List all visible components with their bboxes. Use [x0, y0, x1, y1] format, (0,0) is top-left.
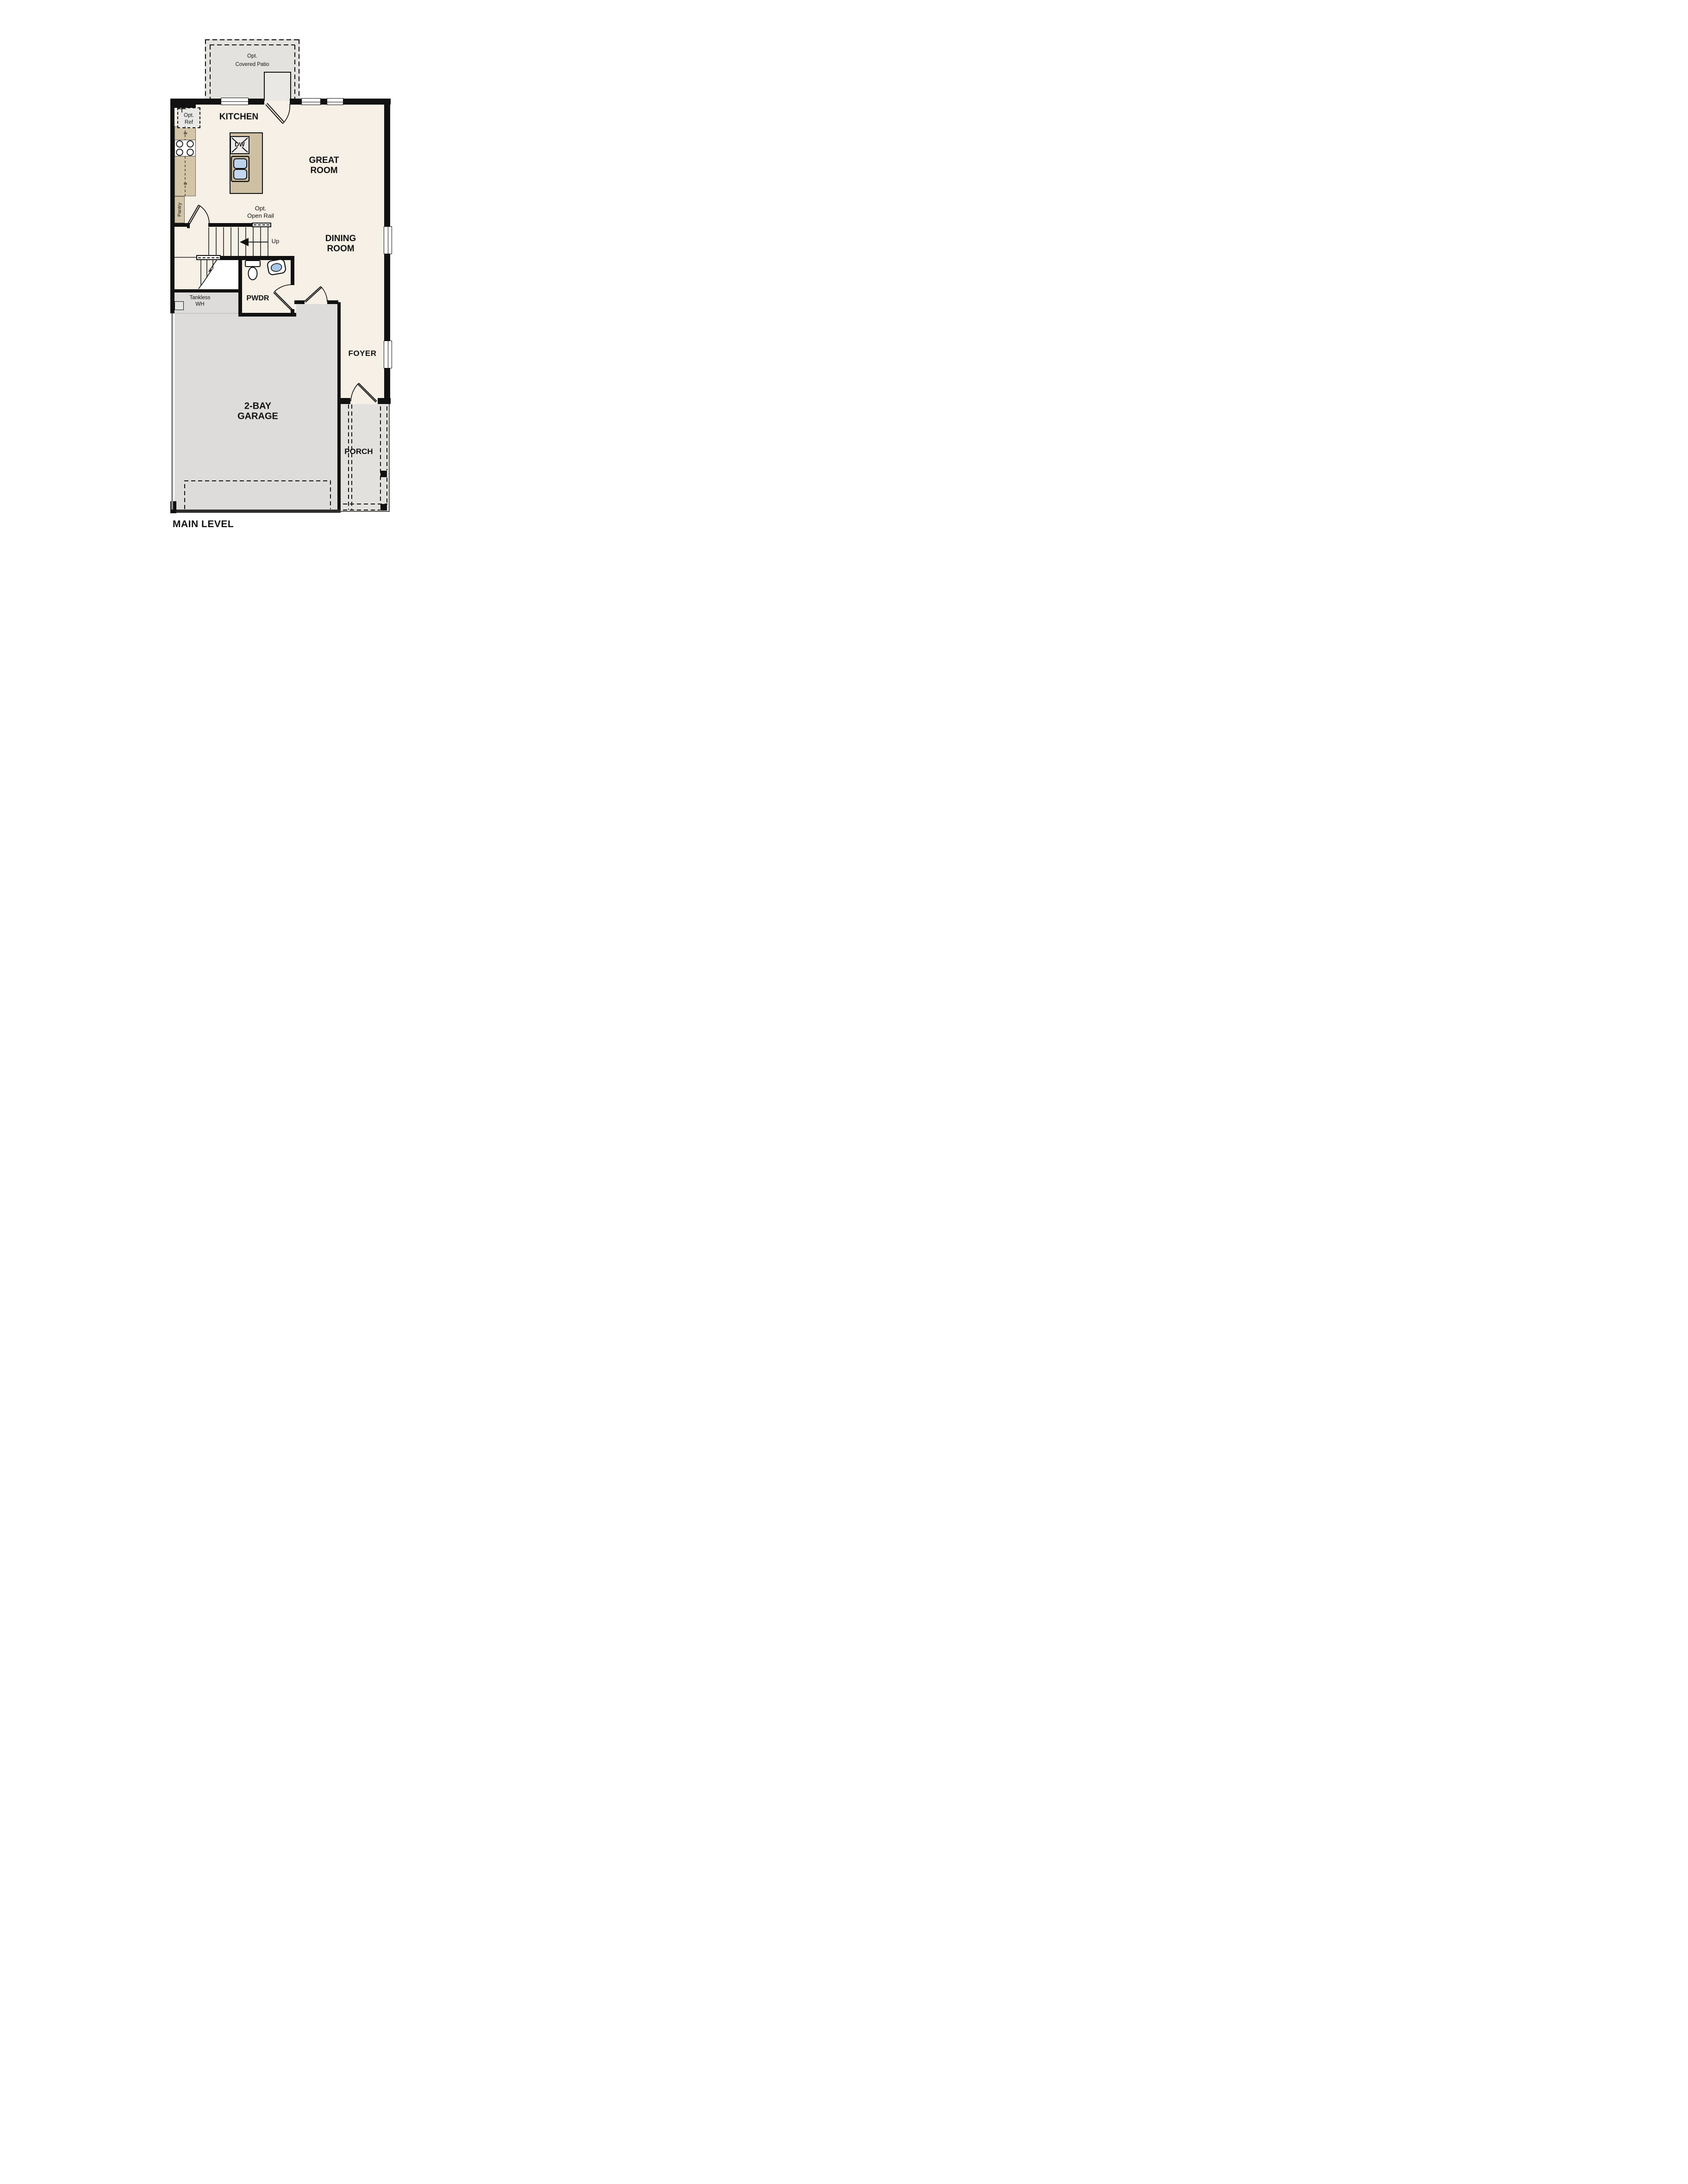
up-label: Up [272, 238, 280, 245]
kitchen-label: KITCHEN [219, 112, 258, 122]
ref-plus-marker [178, 105, 186, 112]
dining-room-label-line2: ROOM [327, 244, 354, 254]
patio-dashed-boundary [205, 39, 299, 100]
patio-door [266, 103, 290, 124]
powder-sink-icon [267, 259, 287, 275]
tankless-label-line1: Tankless [190, 295, 211, 301]
under-stair-void [198, 260, 238, 289]
dining-room-label-line1: DINING [325, 234, 356, 244]
open-rail-label-line2: Open Rail [247, 213, 274, 220]
powder-door [274, 285, 292, 310]
up-arrow [240, 238, 268, 246]
dishwasher-label: DW [235, 142, 245, 149]
toilet-icon [245, 261, 260, 280]
pantry-door [188, 205, 209, 224]
front-door [351, 383, 377, 402]
foyer-label: FOYER [348, 349, 376, 358]
garage-entry-door [305, 286, 327, 302]
great-room-label-line2: ROOM [310, 166, 337, 176]
island-sink-icon [231, 156, 249, 181]
counter-handle-2 [184, 183, 187, 185]
garage-door-dashed [185, 481, 330, 509]
stair-treads-upper [209, 227, 268, 256]
porch-label: PORCH [344, 447, 373, 456]
pantry-label: Pantry [177, 203, 182, 217]
garage-label-line1: 2-BAY [244, 401, 271, 412]
patio-label-line2: Covered Patio [236, 62, 269, 68]
tankless-label-line2: WH [195, 301, 204, 307]
plan-linework [0, 0, 563, 728]
powder-label: PWDR [247, 294, 269, 303]
patio-label-line1: Opt. [247, 53, 257, 59]
floor-plan-page: Opt. Covered Patio KITCHEN GREAT ROOM DI… [0, 0, 563, 728]
counter-handle-1 [184, 132, 187, 134]
garage-label-line2: GARAGE [237, 411, 278, 422]
opt-ref-label-line2: Ref [185, 119, 193, 125]
plan-title: MAIN LEVEL [173, 519, 234, 530]
open-rail-label-line1: Opt. [255, 205, 267, 212]
porch-dashed-boundary [343, 404, 387, 510]
great-room-label-line1: GREAT [309, 156, 339, 166]
opt-ref-label-line1: Opt. [184, 112, 194, 118]
range-burners-icon [176, 141, 193, 156]
